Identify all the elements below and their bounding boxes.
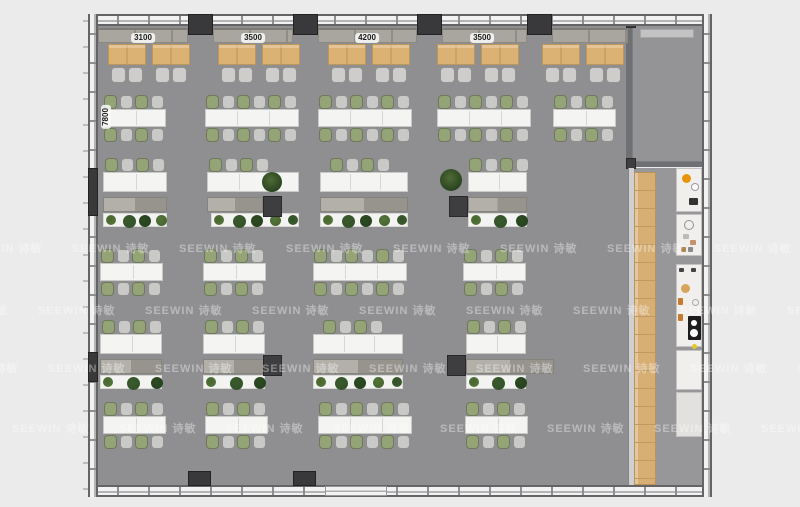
planter-plant: [251, 215, 263, 227]
office-chair: [377, 158, 390, 172]
desk: [318, 109, 412, 127]
desk-divider: [236, 265, 237, 279]
office-chair: [133, 320, 146, 334]
desk: [207, 172, 299, 192]
desk: [553, 109, 616, 127]
planter-plant: [127, 377, 140, 390]
office-chair: [366, 435, 379, 449]
office-chair: [381, 435, 394, 449]
office-chair: [206, 402, 219, 416]
office-chair: [350, 402, 363, 416]
office-chair: [464, 282, 477, 296]
planter-plant: [379, 215, 390, 226]
office-chair: [205, 320, 218, 334]
office-chair: [104, 402, 117, 416]
watermark: SEEWIN 诗敏: [179, 240, 256, 256]
wall-column: [293, 471, 316, 486]
office-chair: [206, 128, 219, 142]
office-chair: [132, 282, 145, 296]
storage-cabinet: [320, 197, 408, 212]
watermark: SEEWIN 诗敏: [466, 302, 543, 318]
office-chair: [585, 128, 598, 142]
desk: [463, 263, 526, 281]
office-chair: [251, 282, 264, 296]
cafe-chair: [331, 67, 346, 83]
office-chair: [469, 158, 482, 172]
office-chair: [237, 435, 250, 449]
cafe-table: [152, 44, 190, 65]
office-chair: [204, 282, 217, 296]
office-chair: [397, 402, 410, 416]
watermark: SEEWIN 诗敏: [0, 360, 18, 376]
cafe-table: [328, 44, 366, 65]
planter-plant: [354, 377, 366, 389]
office-chair: [366, 402, 379, 416]
office-chair: [335, 402, 348, 416]
desk: [437, 109, 531, 127]
office-chair: [235, 282, 248, 296]
cafe-chair: [375, 67, 390, 83]
planter-plant: [360, 215, 372, 227]
office-chair: [256, 158, 269, 172]
office-chair: [222, 402, 235, 416]
office-chair: [268, 95, 281, 109]
office-chair: [152, 158, 165, 172]
cafe-chair: [545, 67, 560, 83]
office-chair: [397, 95, 410, 109]
office-chair: [220, 282, 233, 296]
office-chair: [221, 320, 234, 334]
desk-divider: [382, 111, 383, 125]
office-chair: [151, 128, 164, 142]
watermark: SEEWIN 诗敏: [690, 360, 767, 376]
storage-cabinet: [207, 197, 263, 212]
meeting-room-floor: [632, 26, 702, 162]
office-chair: [222, 128, 235, 142]
office-chair: [376, 249, 389, 263]
watermark: SEEWIN 诗敏: [0, 302, 8, 318]
kitchen-appliance: [691, 320, 697, 326]
watermark: SEEWIN 诗敏: [286, 240, 363, 256]
watermark: SEEWIN 诗敏: [393, 240, 470, 256]
office-chair: [438, 128, 451, 142]
office-chair: [151, 435, 164, 449]
planter-plant: [471, 215, 481, 225]
office-chair: [118, 320, 131, 334]
office-chair: [330, 282, 343, 296]
office-chair: [149, 320, 162, 334]
desk-divider: [350, 174, 351, 190]
office-chair: [120, 128, 133, 142]
office-chair: [381, 128, 394, 142]
office-chair: [135, 435, 148, 449]
cafe-table: [437, 44, 475, 65]
office-chair: [253, 435, 266, 449]
office-chair: [601, 128, 614, 142]
planter-plant: [214, 215, 224, 225]
cafe-chair: [562, 67, 577, 83]
office-chair: [498, 320, 511, 334]
office-chair: [381, 95, 394, 109]
dimension-label: 4200: [355, 33, 379, 43]
wall-bench: [552, 28, 628, 43]
watermark: SEEWIN 诗敏: [145, 302, 222, 318]
watermark: SEEWIN 诗敏: [359, 302, 436, 318]
office-chair: [237, 402, 250, 416]
watermark: SEEWIN 诗敏: [573, 302, 650, 318]
watermark: SEEWIN 诗敏: [680, 302, 757, 318]
watermark: SEEWIN 诗敏: [476, 360, 553, 376]
desk-divider: [469, 111, 470, 125]
office-chair: [361, 282, 374, 296]
planter-plant: [323, 215, 333, 225]
office-chair: [485, 95, 498, 109]
office-chair: [469, 95, 482, 109]
watermark: SEEWIN 诗敏: [500, 240, 577, 256]
cafe-chair: [392, 67, 407, 83]
office-chair: [495, 282, 508, 296]
office-chair: [497, 402, 510, 416]
office-chair: [497, 435, 510, 449]
office-chair: [350, 435, 363, 449]
planter-plant: [206, 377, 216, 387]
desk-divider: [497, 336, 498, 352]
office-chair: [500, 128, 513, 142]
office-chair: [601, 95, 614, 109]
office-chair: [253, 95, 266, 109]
office-chair: [319, 128, 332, 142]
office-chair: [151, 402, 164, 416]
office-chair: [135, 95, 148, 109]
cafe-chair: [128, 67, 143, 83]
desk-divider: [501, 111, 502, 125]
office-chair: [102, 320, 115, 334]
planter-plant: [515, 377, 527, 389]
office-chair: [252, 320, 265, 334]
wall-column: [88, 168, 98, 216]
office-chair: [319, 95, 332, 109]
planter-plant: [342, 215, 355, 228]
cafe-table: [262, 44, 300, 65]
office-chair: [454, 128, 467, 142]
office-chair: [135, 128, 148, 142]
cafe-chair: [484, 67, 499, 83]
desk-divider: [136, 111, 137, 125]
watermark: SEEWIN 诗敏: [119, 420, 196, 436]
office-chair: [222, 435, 235, 449]
cafe-chair: [265, 67, 280, 83]
desk-divider: [496, 265, 497, 279]
planter-plant: [233, 215, 246, 228]
office-chair: [516, 158, 529, 172]
office-chair: [511, 282, 524, 296]
office-chair: [335, 128, 348, 142]
office-chair: [323, 320, 336, 334]
desk-divider: [235, 336, 236, 352]
desk: [320, 172, 408, 192]
potted-plant: [440, 169, 462, 191]
desk: [313, 334, 403, 354]
dimension-label-vertical: 7800: [101, 105, 111, 129]
cafe-table: [542, 44, 580, 65]
kitchen-appliance: [692, 344, 697, 349]
cafe-table: [108, 44, 146, 65]
cafe-table: [481, 44, 519, 65]
office-chair: [121, 158, 134, 172]
watermark: SEEWIN 诗敏: [252, 302, 329, 318]
office-chair: [222, 95, 235, 109]
watermark: SEEWIN 诗敏: [761, 420, 800, 436]
office-chair: [366, 95, 379, 109]
office-chair: [136, 158, 149, 172]
meeting-room-screen: [640, 29, 694, 38]
watermark: SEEWIN 诗敏: [583, 360, 660, 376]
office-chair: [514, 320, 527, 334]
office-chair: [485, 128, 498, 142]
desk-divider: [350, 111, 351, 125]
wall-column: [188, 14, 213, 35]
office-chair: [397, 435, 410, 449]
office-chair: [516, 128, 529, 142]
kitchen-appliance: [691, 268, 696, 272]
kitchen-appliance: [688, 247, 693, 252]
desk-divider: [374, 336, 375, 352]
cafe-chair: [457, 67, 472, 83]
column-pillar: [263, 196, 282, 217]
office-chair: [480, 249, 493, 263]
planter-plant: [392, 377, 402, 387]
office-chair: [335, 435, 348, 449]
storage-cabinet: [468, 197, 527, 212]
office-chair: [381, 402, 394, 416]
office-chair: [350, 128, 363, 142]
desk-divider: [499, 174, 500, 190]
office-chair: [345, 282, 358, 296]
desk-divider: [239, 174, 240, 190]
office-chair: [268, 128, 281, 142]
office-chair: [237, 128, 250, 142]
office-chair: [209, 158, 222, 172]
office-chair: [148, 282, 161, 296]
planter-plant: [469, 377, 479, 387]
desk: [203, 263, 266, 281]
kitchen-appliance: [682, 174, 691, 183]
column-pillar: [447, 355, 466, 376]
office-chair: [319, 402, 332, 416]
watermark: SEEWIN 诗敏: [607, 240, 684, 256]
office-chair: [339, 320, 352, 334]
kitchen-appliance: [690, 329, 698, 337]
wall-column: [293, 14, 318, 35]
office-chair: [236, 320, 249, 334]
kitchen-appliance: [679, 268, 684, 272]
cafe-chair: [238, 67, 253, 83]
office-chair: [469, 128, 482, 142]
desk-divider: [133, 265, 134, 279]
office-chair: [120, 402, 133, 416]
cafe-table: [218, 44, 256, 65]
watermark: SEEWIN 诗敏: [262, 360, 339, 376]
office-chair: [350, 95, 363, 109]
desk: [100, 263, 163, 281]
sliding-door: [325, 486, 387, 496]
office-chair: [376, 282, 389, 296]
office-chair: [206, 435, 219, 449]
planter-plant: [494, 215, 507, 228]
office-chair: [482, 402, 495, 416]
desk-divider: [269, 111, 270, 125]
office-chair: [454, 95, 467, 109]
watermark: SEEWIN 诗敏: [72, 240, 149, 256]
dimension-label: 3100: [131, 33, 155, 43]
planter-plant: [156, 215, 167, 226]
window-wall-top: [88, 14, 712, 26]
desk: [103, 109, 166, 127]
office-chair: [225, 158, 238, 172]
office-chair: [480, 282, 493, 296]
office-chair: [284, 95, 297, 109]
planter-plant: [516, 215, 528, 227]
office-chair: [554, 128, 567, 142]
office-chair: [513, 435, 526, 449]
office-chair: [485, 158, 498, 172]
office-chair: [392, 282, 405, 296]
watermark: SEEWIN 诗敏: [12, 420, 89, 436]
planter-plant: [316, 377, 326, 387]
desk-divider: [237, 111, 238, 125]
planter-plant: [492, 377, 505, 390]
kitchen-appliance: [681, 284, 690, 293]
watermark: SEEWIN 诗敏: [369, 360, 446, 376]
cafe-chair: [111, 67, 126, 83]
office-chair: [482, 435, 495, 449]
office-chair: [319, 435, 332, 449]
office-chair: [500, 95, 513, 109]
cafe-chair: [172, 67, 187, 83]
cafe-chair: [589, 67, 604, 83]
desk-divider: [345, 265, 346, 279]
office-chair: [253, 402, 266, 416]
planter-plant: [397, 215, 407, 225]
watermark: SEEWIN 诗敏: [155, 360, 232, 376]
office-chair: [237, 95, 250, 109]
watermark: SEEWIN 诗敏: [48, 360, 125, 376]
dimension-label: 3500: [470, 33, 494, 43]
office-chair: [104, 128, 117, 142]
kitchen-appliance: [683, 234, 689, 239]
cafe-chair: [348, 67, 363, 83]
planter-plant: [254, 377, 266, 389]
watermark: SEEWIN 诗敏: [226, 420, 303, 436]
planter-plant: [123, 215, 136, 228]
desk-divider: [344, 336, 345, 352]
window-wall-bottom: [88, 485, 712, 497]
kitchen-appliance: [684, 220, 694, 230]
dimension-label: 3500: [241, 33, 265, 43]
cafe-chair: [155, 67, 170, 83]
office-chair: [361, 158, 374, 172]
watermark: SEEWIN 诗敏: [38, 302, 115, 318]
watermark: SEEWIN 诗敏: [333, 420, 410, 436]
desk-divider: [132, 336, 133, 352]
office-chair: [101, 282, 114, 296]
wall-column: [527, 14, 552, 35]
office-chair: [397, 128, 410, 142]
office-chair: [585, 95, 598, 109]
office-chair: [346, 158, 359, 172]
desk: [100, 334, 162, 354]
office-chair: [105, 158, 118, 172]
potted-plant: [262, 172, 282, 192]
office-chair: [330, 158, 343, 172]
desk: [205, 109, 299, 127]
watermark: SEEWIN 诗敏: [787, 302, 800, 318]
desk-divider: [377, 265, 378, 279]
wall-column: [417, 14, 442, 35]
office-chair: [206, 95, 219, 109]
office-chair: [366, 128, 379, 142]
office-chair: [554, 95, 567, 109]
planter-plant: [106, 215, 116, 225]
wall-column: [188, 471, 211, 486]
office-chair: [253, 128, 266, 142]
storage-cabinet: [103, 197, 167, 212]
office-chair: [483, 320, 496, 334]
office-chair: [354, 320, 367, 334]
office-chair: [117, 282, 130, 296]
watermark: SEEWIN 诗敏: [714, 240, 791, 256]
kitchen-appliance: [689, 198, 698, 205]
watermark: SEEWIN 诗敏: [547, 420, 624, 436]
planter-plant: [103, 377, 113, 387]
office-chair: [466, 402, 479, 416]
column-pillar: [449, 196, 468, 217]
planter-plant: [288, 215, 298, 225]
cafe-chair: [606, 67, 621, 83]
watermark: SEEWIN 诗敏: [440, 420, 517, 436]
office-chair: [240, 158, 253, 172]
cafe-chair: [501, 67, 516, 83]
watermark: SEEWIN 诗敏: [654, 420, 731, 436]
desk: [313, 263, 407, 281]
office-chair: [513, 402, 526, 416]
desk: [103, 172, 167, 192]
office-chair: [466, 435, 479, 449]
desk-divider: [136, 174, 137, 190]
desk-divider: [380, 174, 381, 190]
planter-plant: [373, 377, 384, 388]
wood-walkway: [634, 172, 656, 485]
cafe-chair: [282, 67, 297, 83]
office-chair: [135, 402, 148, 416]
desk: [468, 172, 527, 192]
planter-plant: [151, 377, 163, 389]
desk: [466, 334, 526, 354]
kitchen-appliance: [690, 240, 696, 245]
office-chair: [467, 320, 480, 334]
desk: [203, 334, 265, 354]
office-chair: [120, 435, 133, 449]
office-chair: [314, 282, 327, 296]
office-chair: [284, 128, 297, 142]
office-chair: [335, 95, 348, 109]
cafe-table: [372, 44, 410, 65]
office-chair: [104, 435, 117, 449]
office-chair: [438, 95, 451, 109]
kitchen-appliance: [691, 183, 699, 191]
cafe-chair: [221, 67, 236, 83]
office-chair: [516, 95, 529, 109]
